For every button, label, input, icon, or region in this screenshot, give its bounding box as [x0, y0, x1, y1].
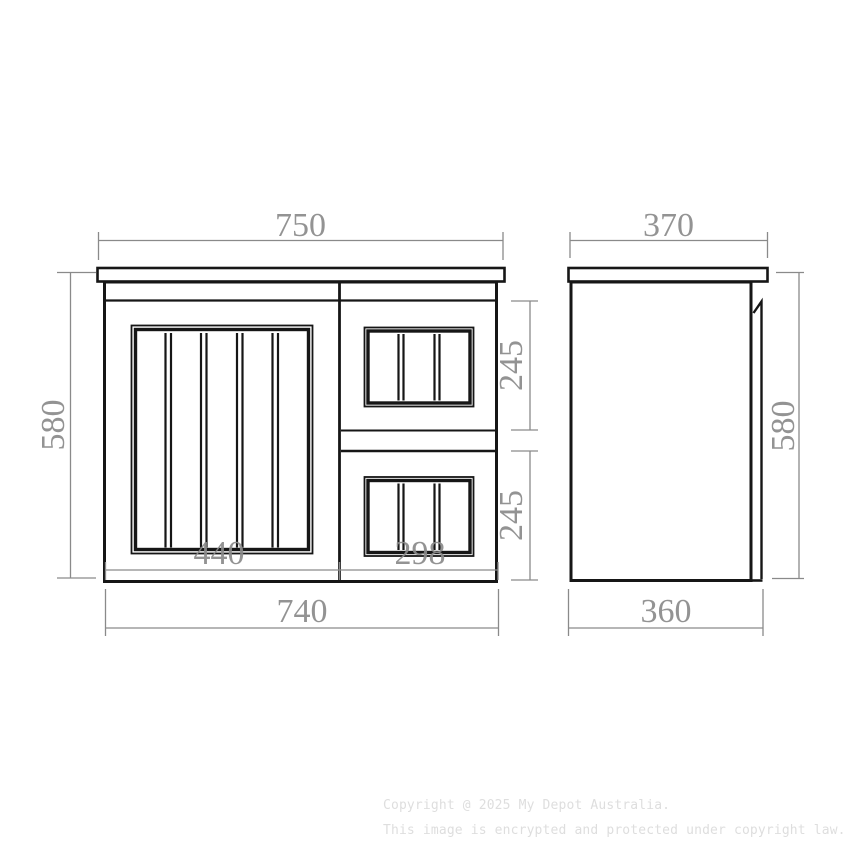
- dim-door-and-drawer-width: 440 298: [106, 535, 499, 580]
- dim-label-cabinet-width: 740: [277, 593, 328, 630]
- dim-label-bottom-drawer-height: 245: [493, 490, 530, 541]
- dim-side-height: 580: [765, 273, 804, 579]
- dim-label-door-width: 440: [194, 535, 245, 572]
- dim-side-bottom-depth: 360: [569, 589, 764, 636]
- door-panel: [132, 326, 313, 554]
- door-panel-inner-frame: [136, 330, 309, 550]
- door-vgroove-lines: [166, 333, 279, 548]
- dim-label-drawer-width: 298: [395, 535, 446, 572]
- top-drawer-vgroove-lines: [399, 334, 440, 401]
- dim-label-side-height: 580: [765, 401, 802, 452]
- dim-label-top-drawer-height: 245: [493, 340, 530, 391]
- side-countertop: [569, 268, 768, 282]
- dim-label-bottom-depth: 360: [641, 593, 692, 630]
- watermark-line-2: This image is encrypted and protected un…: [383, 823, 846, 838]
- dim-label-overall-width: 750: [275, 207, 326, 244]
- side-door-edge: [754, 302, 762, 580]
- dim-side-top-depth: 370: [570, 207, 768, 258]
- top-drawer-outer-frame: [365, 328, 474, 407]
- technical-drawing: 750 370 580 580 245 245: [0, 0, 850, 850]
- vanity-dimension-diagram: 750 370 580 580 245 245: [0, 0, 850, 850]
- dim-label-top-depth: 370: [643, 207, 694, 244]
- top-drawer-inner-frame: [368, 331, 470, 403]
- dim-bottom-drawer-height: 245: [493, 451, 538, 580]
- side-view: [569, 268, 768, 581]
- side-cabinet-body: [571, 282, 751, 581]
- dim-front-cabinet-width: 740: [106, 589, 499, 636]
- dim-label-front-height: 580: [35, 400, 72, 451]
- dim-top-drawer-height: 245: [493, 301, 538, 430]
- dim-front-height: 580: [35, 273, 96, 579]
- door-panel-outer-frame: [132, 326, 313, 554]
- watermark-line-1: Copyright @ 2025 My Depot Australia.: [383, 798, 670, 813]
- top-drawer-panel: [365, 328, 474, 407]
- front-countertop: [98, 268, 505, 282]
- dim-front-overall-width: 750: [99, 207, 504, 260]
